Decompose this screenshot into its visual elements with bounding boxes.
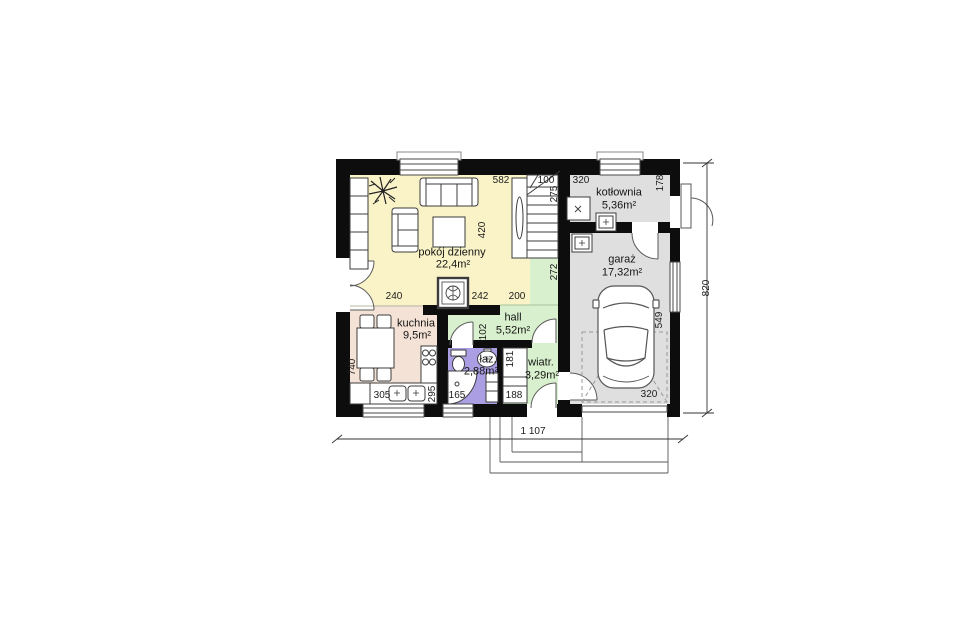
dim-living-width: 582 <box>493 176 510 186</box>
dim-total-width: 1 107 <box>520 427 545 437</box>
dim-bath-width: 165 <box>449 391 466 401</box>
living-room-label: pokój dzienny <box>418 248 485 259</box>
chair <box>377 315 391 328</box>
dim-living-depth: 420 <box>478 222 488 239</box>
garage-area: 17,32m² <box>602 268 642 279</box>
kitchen-label: kuchnia <box>397 319 435 330</box>
dim-kitchen-opening: 240 <box>386 292 403 302</box>
sofa <box>420 178 478 206</box>
dim-garage-depth: 549 <box>655 312 665 329</box>
car <box>593 286 659 388</box>
dim-hall-opening: 200 <box>509 292 526 302</box>
chair <box>360 315 374 328</box>
drain-box <box>572 234 592 252</box>
boiler-room-area: 5,36m² <box>602 201 636 212</box>
hall-area: 5,52m² <box>496 326 530 337</box>
vestibule-label: wiatr. <box>528 358 554 369</box>
garage-label: garaż <box>608 255 636 266</box>
chair <box>377 368 391 381</box>
dim-wardrobe-bottom: 188 <box>506 391 523 401</box>
dim-wardrobe-top: 181 <box>506 351 516 368</box>
living-window <box>400 159 458 175</box>
boiler-window <box>600 159 640 175</box>
dim-kitchen-depth: 740 <box>348 359 358 376</box>
dim-stair-corridor: 272 <box>550 264 560 281</box>
garage-window <box>670 262 680 312</box>
floor-plan-drawing <box>0 0 960 630</box>
floor-plan-canvas: pokój dzienny 22,4m² kuchnia 9,5m² hall … <box>0 0 960 630</box>
sink-bowl <box>389 386 406 401</box>
bathroom-label: łaz. <box>479 355 496 366</box>
dim-bath-door: 102 <box>479 324 489 341</box>
vestibule-area: 3,29m² <box>525 371 559 382</box>
drain-box <box>596 213 616 231</box>
coffee-table <box>433 217 465 247</box>
kitchen-window <box>363 404 424 417</box>
kitchen-area: 9,5m² <box>403 331 431 342</box>
sink-bowl <box>408 386 425 401</box>
kitchen-counter <box>350 383 437 404</box>
stove <box>421 346 437 383</box>
dim-boiler-depth: 178 <box>656 175 666 192</box>
fireplace <box>438 278 468 308</box>
garage-door <box>582 406 667 412</box>
armchair <box>392 208 418 252</box>
dim-stair-run: 275 <box>550 186 560 203</box>
bathroom-window <box>443 404 473 417</box>
dim-boiler-width: 320 <box>573 176 590 186</box>
boiler <box>567 197 590 220</box>
entrance-steps <box>490 417 668 473</box>
hall-label: hall <box>504 313 521 324</box>
dim-kitchen-width: 295 <box>428 386 438 403</box>
dim-kitchen-counter: 305 <box>374 391 391 401</box>
living-room-area: 22,4m² <box>436 260 470 271</box>
bathroom-area: 2,88m² <box>464 367 498 378</box>
kitchen-table <box>357 328 394 368</box>
chair <box>360 368 374 381</box>
dim-garage-width: 320 <box>641 390 658 400</box>
dim-total-depth: 820 <box>702 280 712 297</box>
dim-fireplace-offset: 242 <box>472 292 489 302</box>
sideboard <box>512 178 527 258</box>
boiler-room-label: kotłownia <box>596 188 642 199</box>
bookshelf <box>350 178 368 269</box>
